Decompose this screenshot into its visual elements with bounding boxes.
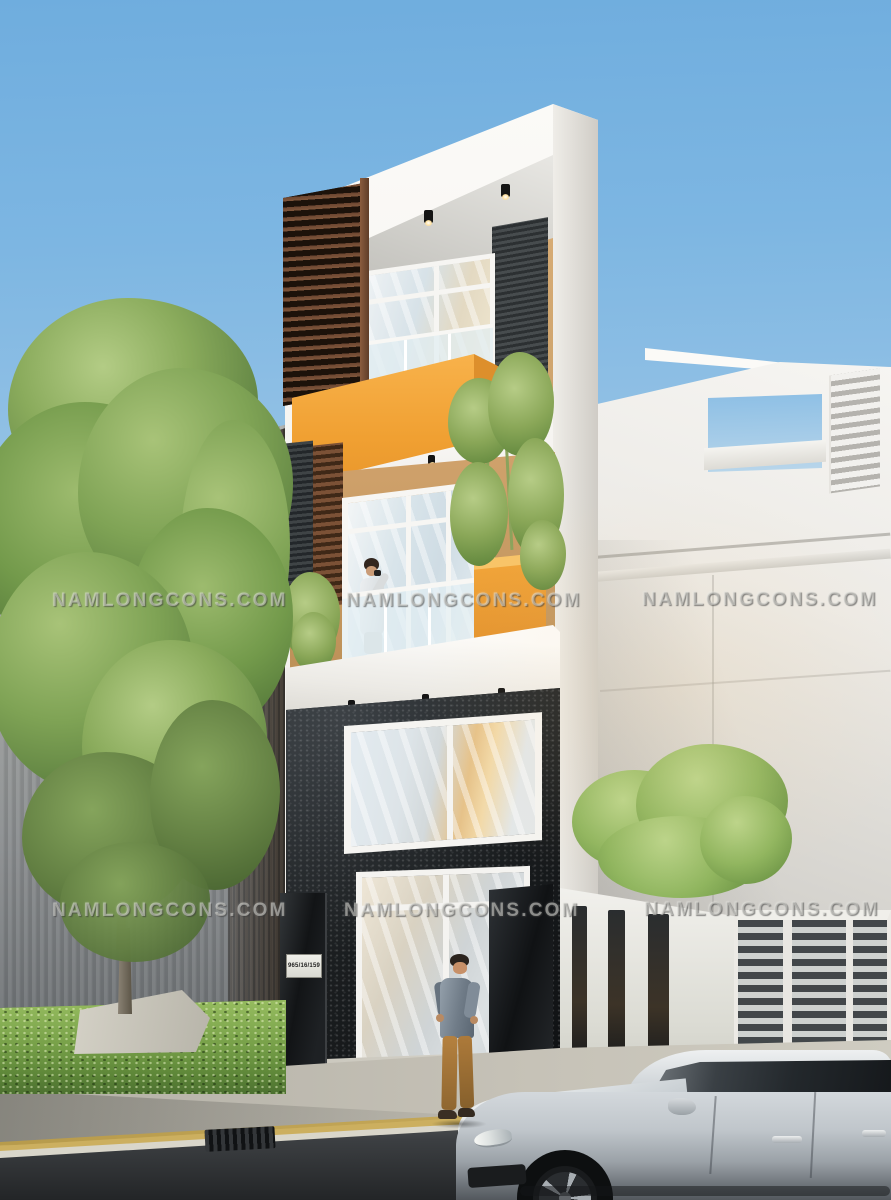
bamboo-foliage [450, 462, 508, 566]
gate-pillar-left [280, 893, 327, 1089]
small-tree-foliage [700, 796, 792, 884]
man-hand [436, 1014, 444, 1022]
standing-man [428, 952, 486, 1136]
bamboo-foliage [520, 520, 566, 590]
man-face [453, 962, 467, 974]
car-door-handle [862, 1130, 886, 1137]
architectural-render-scene: 965/16/159 [0, 0, 891, 1200]
glass-reflection [351, 720, 535, 847]
car-mirror [668, 1098, 696, 1115]
watermark: NAMLONGCONS.COM [344, 900, 580, 922]
watermark: NAMLONGCONS.COM [642, 589, 878, 611]
fence-slot [608, 910, 625, 1068]
window-mullion [447, 725, 453, 839]
drain-grate [204, 1126, 275, 1152]
wood-louver-post [360, 178, 369, 404]
man-hand [470, 1016, 478, 1024]
downlight [501, 184, 510, 197]
watermark: NAMLONGCONS.COM [52, 900, 288, 922]
address-plate: 965/16/159 [286, 954, 322, 978]
car-front-intake [467, 1164, 526, 1188]
car-sill-shadow [520, 1186, 890, 1196]
ground-floor-window [344, 712, 542, 854]
man-shadow [422, 1118, 496, 1130]
man-shoe [458, 1108, 475, 1117]
watermark: NAMLONGCONS.COM [346, 590, 582, 612]
man-shoe [438, 1110, 457, 1119]
downlight [424, 210, 433, 223]
car-door-handle [772, 1136, 802, 1143]
neighbor-louver-panel [829, 368, 880, 493]
watermark: NAMLONGCONS.COM [644, 899, 880, 921]
man-leg [441, 1036, 457, 1110]
watermark: NAMLONGCONS.COM [52, 590, 288, 612]
wood-louver-screen [283, 182, 369, 406]
fence-slot [572, 906, 587, 1066]
man-leg [458, 1036, 475, 1108]
